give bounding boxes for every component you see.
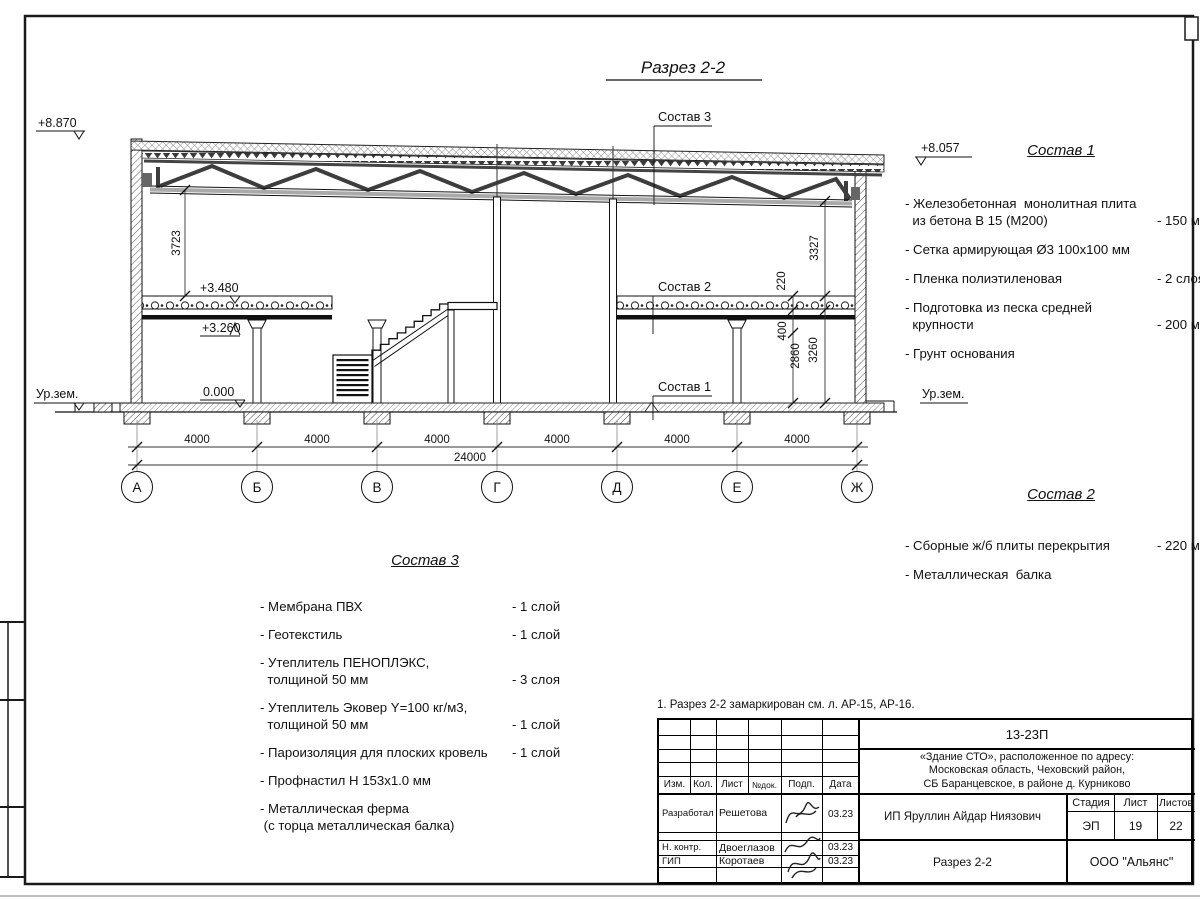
dim-bay-5: 4000 (664, 434, 690, 446)
truss-bearing-right (851, 187, 860, 200)
list-item: - Сетка армирующая Ø3 100х100 мм (905, 241, 1200, 258)
sostav3-title: Состав 3 (260, 552, 590, 569)
leader-sostav1-label: Состав 1 (658, 379, 711, 394)
dim-clear-height: 2860 (790, 343, 802, 369)
dim-right-height: 3327 (809, 235, 821, 261)
item-name: - Профнастил Н 153х1.0 мм (260, 772, 512, 789)
item-value: - 2 слоя (1157, 270, 1200, 287)
level-ground-left: Ур.зем. (36, 387, 78, 401)
item-name: - Пленка полиэтиленовая (905, 270, 1157, 287)
dim-bay-6: 4000 (784, 434, 810, 446)
item-name: - Утеплитель Эковер Y=100 кг/м3, толщино… (260, 699, 512, 733)
axis-zh: Ж (851, 480, 864, 495)
sostav3-list: Состав 3 - Мембрана ПВХ - 1 слой - Геоте… (260, 552, 590, 845)
list-item: - Металлическая балка (905, 566, 1200, 583)
sheet-note: 1. Разрез 2-2 замаркирован см. л. АР-15,… (657, 699, 915, 711)
level-ground-right: Ур.зем. (922, 387, 964, 401)
item-value: - 1 слой (512, 598, 560, 615)
list-item: - Утеплитель Эковер Y=100 кг/м3, толщино… (260, 699, 590, 733)
leader-sostav2-label: Состав 2 (658, 279, 711, 294)
staircase (333, 303, 497, 404)
axis-d: Д (612, 480, 621, 495)
stamp-doc-number: 13-23П (859, 720, 1195, 748)
list-item: - Пленка полиэтиленовая - 2 слоя (905, 270, 1200, 287)
axis-g: Г (493, 480, 501, 495)
dim-total: 24000 (454, 452, 486, 464)
stamp-sheet-title: Разрез 2-2 (859, 841, 1066, 882)
stamp-name-ncontrol: Двоеглазов (716, 840, 781, 855)
item-name: - Подготовка из песка средней крупности (905, 299, 1157, 333)
level-top-left: +8.870 (38, 116, 77, 130)
ground-floor (55, 401, 897, 412)
stair-steps (372, 304, 448, 356)
item-value: - 1 слой (512, 716, 560, 733)
item-value: - 200 мм (1157, 316, 1200, 333)
stamp-sheet-value: 19 (1114, 812, 1157, 839)
list-item: - Геотекстиль - 1 слой (260, 626, 590, 643)
stamp-stage-value: ЭП (1068, 812, 1114, 839)
landing-support (448, 310, 454, 403)
item-value: - 3 слоя (512, 671, 560, 688)
level-slab-top: +3.480 (200, 281, 239, 295)
bottom-dimensions: 4000 4000 4000 4000 4000 4000 24000 (128, 420, 868, 471)
dim-slab-thickness: 220 (776, 271, 788, 290)
dim-beam-depth: 400 (777, 321, 789, 340)
item-name: - Железобетонная монолитная плита из бет… (905, 195, 1157, 229)
stamp-date-gip: 03.23 (822, 855, 859, 867)
item-name: - Металлическая балка (905, 566, 1157, 583)
sostav2-list: Состав 2 - Сборные ж/б плиты перекрытия … (905, 486, 1200, 595)
sostav2-title: Состав 2 (905, 486, 1200, 503)
item-name: - Сборные ж/б плиты перекрытия (905, 537, 1157, 554)
stamp-col-data: Дата (822, 776, 859, 793)
item-name: - Грунт основания (905, 345, 1157, 362)
dim-left-height: 3723 (171, 230, 183, 256)
item-name: - Сетка армирующая Ø3 100х100 мм (905, 241, 1157, 258)
drawing-sheet: { "drawing": { "title": "Разрез 2-2", "l… (0, 0, 1200, 900)
title-block: Изм. Кол. Лист №док. Подп. Дата Разработ… (657, 718, 1193, 884)
stamp-name-developer: Решетова (716, 794, 781, 832)
stair-landing (448, 303, 497, 310)
dim-bay-3: 4000 (424, 434, 450, 446)
stamp-stage-label: Стадия (1068, 795, 1114, 811)
stamp-col-list: Лист (716, 776, 748, 793)
sostav1-list: Состав 1 - Железобетонная монолитная пли… (905, 142, 1200, 374)
stamp-role-developer: Разработал (659, 794, 716, 832)
dim-bay-2: 4000 (304, 434, 330, 446)
stamp-object-address: «Здание СТО», расположенное по адресу: М… (859, 749, 1195, 793)
dim-bay-4: 4000 (544, 434, 570, 446)
list-item: - Профнастил Н 153х1.0 мм (260, 772, 590, 789)
stamp-sheets-value: 22 (1157, 812, 1195, 839)
stamp-role-ncontrol: Н. контр. (659, 840, 716, 855)
stamp-client: ИП Яруллин Айдар Ниязович (859, 795, 1066, 839)
stamp-sheets-label: Листов (1157, 795, 1195, 811)
roof (131, 141, 884, 175)
axis-e: Е (732, 480, 741, 495)
stamp-name-gip: Коротаев (716, 855, 781, 867)
drawing-title: Разрез 2-2 (641, 58, 726, 77)
list-item: - Подготовка из песка средней крупности … (905, 299, 1200, 333)
signature-gip (782, 834, 822, 881)
dim-bay-1: 4000 (184, 434, 210, 446)
item-name: - Пароизоляция для плоских кровель (260, 744, 512, 761)
stamp-col-izm: Изм. (659, 776, 690, 793)
tall-columns (494, 144, 617, 403)
sostav1-title: Состав 1 (905, 142, 1200, 159)
stamp-col-podp: Подп. (781, 776, 822, 793)
truss-bearing-left (142, 173, 152, 187)
list-item: - Сборные ж/б плиты перекрытия - 220 мм (905, 537, 1200, 554)
item-name: - Мембрана ПВХ (260, 598, 512, 615)
left-wall (131, 139, 142, 412)
item-value: - 150 мм (1157, 212, 1200, 229)
list-item: - Железобетонная монолитная плита из бет… (905, 195, 1200, 229)
stamp-role-gip: ГИП (659, 855, 716, 867)
stamp-col-kol: Кол. (690, 776, 716, 793)
item-name: - Геотекстиль (260, 626, 512, 643)
dim-floor-to-slab: 3260 (808, 337, 820, 363)
item-name: - Утеплитель ПЕНОПЛЭКС, толщиной 50 мм (260, 654, 512, 688)
item-value: - 1 слой (512, 744, 560, 761)
leader-sostav1: Состав 1 (653, 379, 712, 420)
list-item: - Утеплитель ПЕНОПЛЭКС, толщиной 50 мм -… (260, 654, 590, 688)
stamp-company: ООО "Альянс" (1068, 841, 1195, 882)
axis-v: В (372, 480, 381, 495)
stamp-sheet-label: Лист (1114, 795, 1157, 811)
item-value: - 1 слой (512, 626, 560, 643)
list-item: - Грунт основания (905, 345, 1200, 362)
list-item: - Пароизоляция для плоских кровель - 1 с… (260, 744, 590, 761)
axis-b: Б (253, 480, 262, 495)
stamp-date-developer: 03.23 (822, 806, 859, 822)
list-item: - Мембрана ПВХ - 1 слой (260, 598, 590, 615)
level-floor: 0.000 (203, 385, 234, 399)
stamp-date-ncontrol: 03.23 (822, 840, 859, 855)
item-name: - Металлическая ферма (с торца металличе… (260, 800, 512, 834)
item-value: - 220 мм (1157, 537, 1200, 554)
axis-a: А (132, 480, 141, 495)
stamp-col-ndok: №док. (748, 776, 781, 793)
leader-sostav3-label: Состав 3 (658, 109, 711, 124)
axis-bubbles: А Б В Г Д Е Ж (122, 472, 873, 503)
signature-developer (782, 795, 822, 831)
list-item: - Металлическая ферма (с торца металличе… (260, 800, 590, 834)
